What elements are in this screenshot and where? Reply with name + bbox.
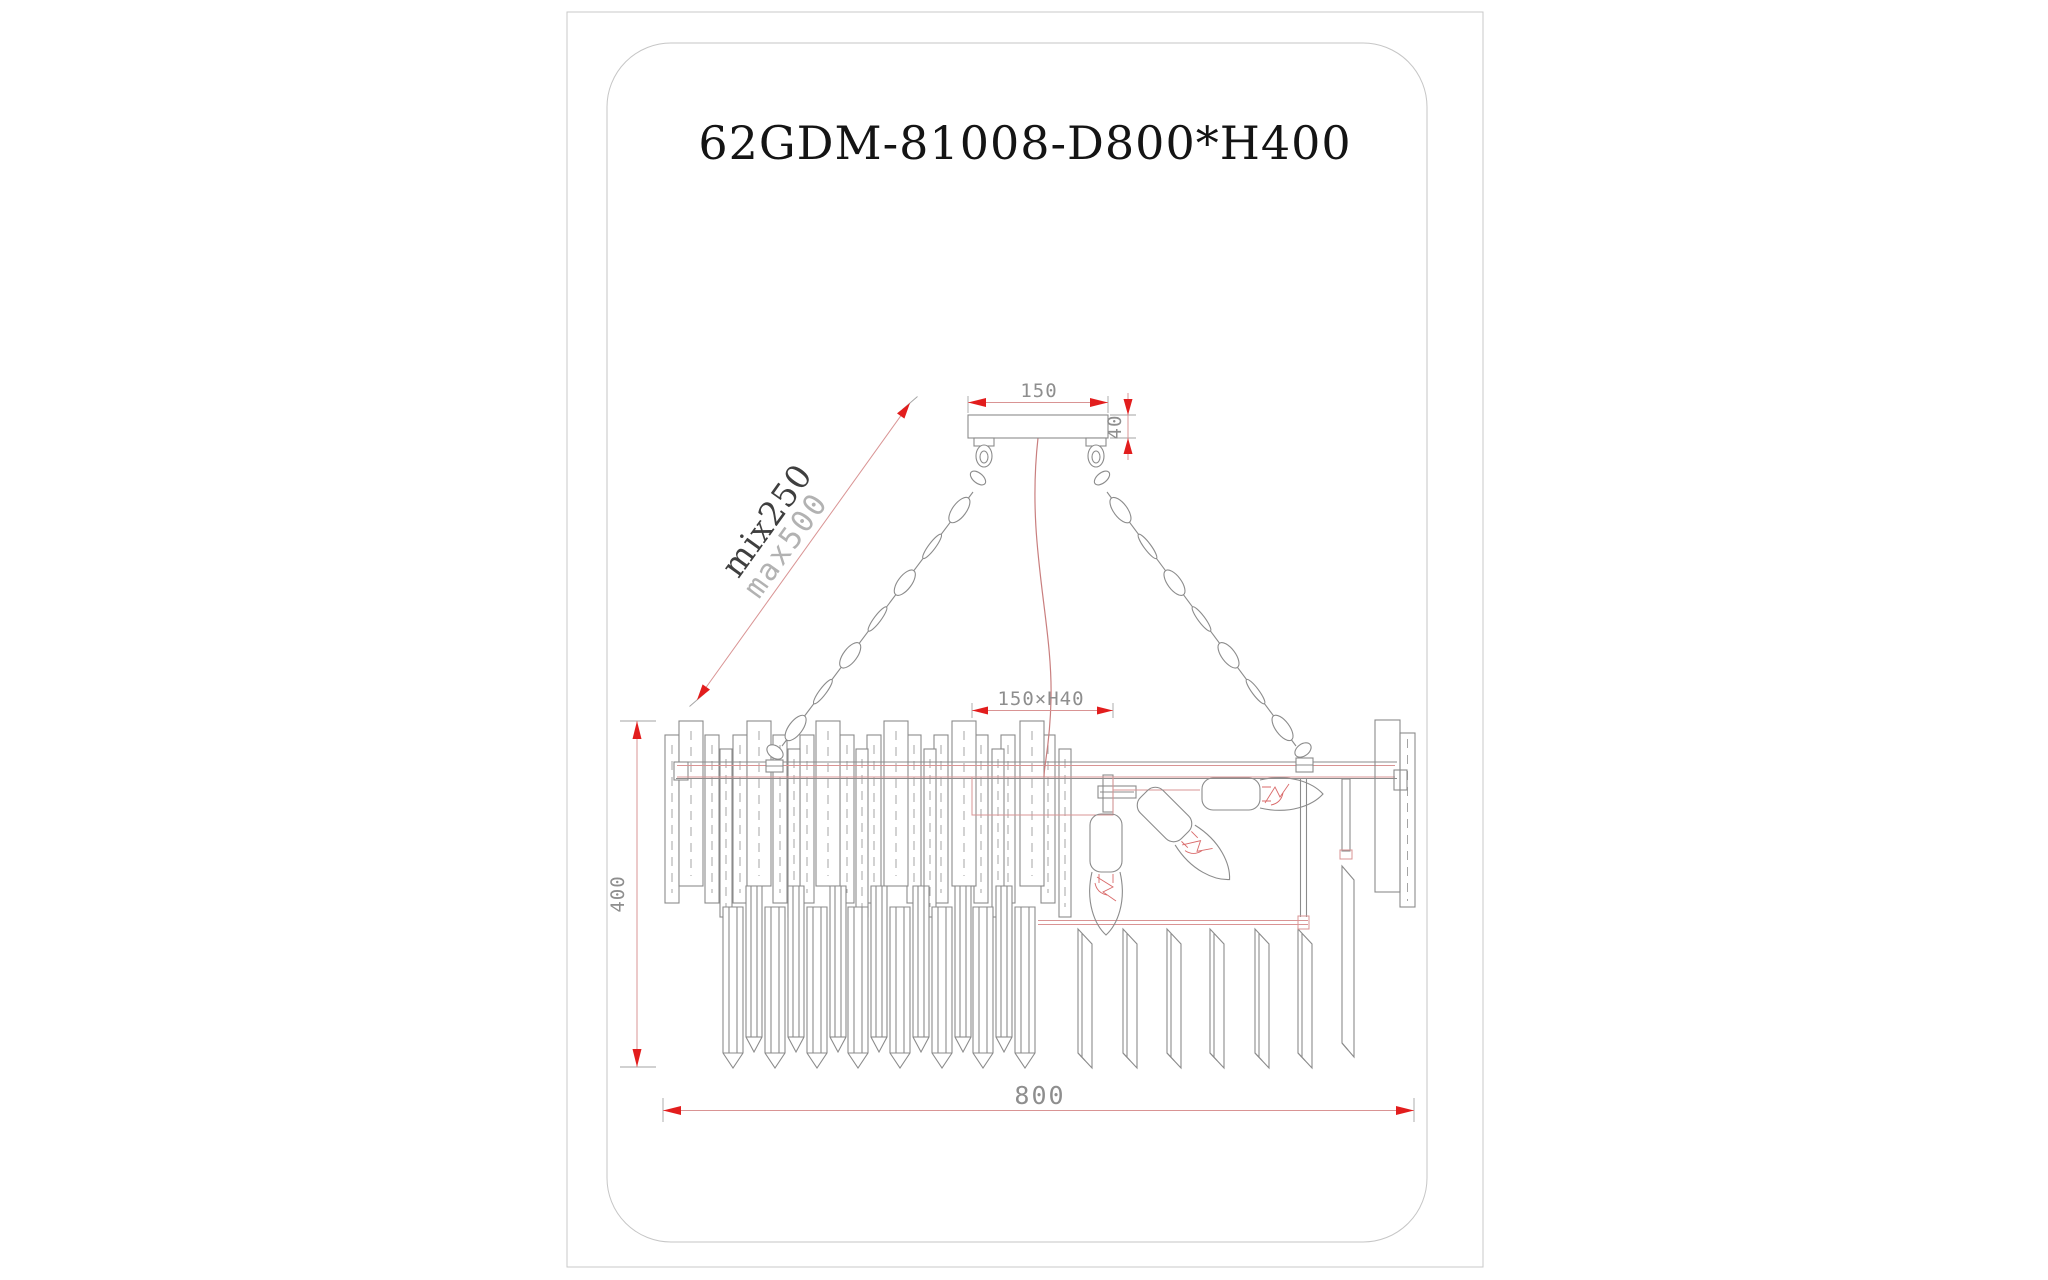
hanging-prism-array (723, 886, 1035, 1068)
prism-slab (1167, 929, 1181, 1068)
prism-short (955, 886, 971, 1052)
prism-short (996, 886, 1012, 1052)
prism-long (807, 907, 827, 1068)
prism-long (890, 907, 910, 1068)
dim-label-150: 150 (1020, 380, 1057, 402)
prism-long (973, 907, 993, 1068)
prism-long (723, 907, 743, 1068)
prism-slab (1255, 929, 1269, 1068)
prism-long (848, 907, 868, 1068)
drawing-title: 62GDM-81008-D800*H400 (698, 116, 1351, 170)
prism-short (746, 886, 762, 1052)
dim-label-40: 40 (1104, 415, 1126, 440)
dim-label-150xH40: 150×H40 (997, 688, 1084, 710)
corner-prism (1342, 866, 1354, 1057)
prism-short (913, 886, 929, 1052)
chandelier-drawing: 62GDM-81008-D800*H400 (0, 0, 2048, 1280)
prism-slab (1123, 929, 1137, 1068)
prism-slab (1298, 929, 1312, 1068)
prism-long (1015, 907, 1035, 1068)
prism-slab (1210, 929, 1224, 1068)
prism-short (830, 886, 846, 1052)
canopy-plate (968, 415, 1108, 438)
dim-label-400: 400 (607, 875, 629, 912)
prism-slab (1078, 929, 1092, 1068)
prism-long (932, 907, 952, 1068)
prism-short (871, 886, 887, 1052)
sheet (567, 12, 1483, 1267)
prism-long (765, 907, 785, 1068)
prism-short (788, 886, 804, 1052)
dim-label-800: 800 (1014, 1081, 1065, 1110)
